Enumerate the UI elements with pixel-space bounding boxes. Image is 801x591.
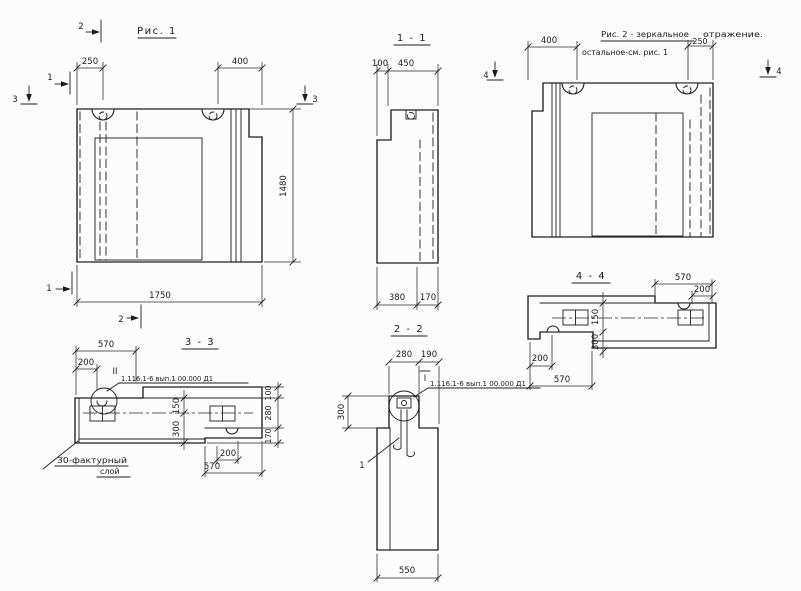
svg-text:300: 300 [591, 334, 601, 350]
svg-text:570: 570 [204, 462, 220, 472]
svg-text:150: 150 [591, 309, 601, 325]
sec11-loop-hidden [408, 113, 415, 120]
drawing-canvas: Рис. 1 250 [0, 0, 801, 591]
sec33-loop-section [97, 401, 107, 406]
svg-text:2: 2 [118, 315, 123, 325]
sec33-note-line1: 30-фактурный [57, 456, 127, 465]
fig2-panel-outline [532, 83, 713, 237]
sec11-dims-top: 100 450 [372, 59, 442, 136]
sec11-title: 1 - 1 [397, 33, 427, 44]
svg-text:170: 170 [264, 428, 273, 443]
drawing-sheet: Рис. 1 250 [0, 0, 801, 591]
sec33-outline [75, 387, 262, 443]
sec22-designation: 1.116.1-6 вып.1 00.000 Д1 [430, 380, 526, 388]
svg-text:550: 550 [399, 566, 415, 576]
fig1-dim-400: 400 [215, 57, 266, 105]
svg-text:300: 300 [337, 404, 347, 420]
svg-text:150: 150 [172, 398, 182, 414]
svg-text:100: 100 [372, 59, 388, 69]
sec44-dim-200-bottom: 200 [527, 335, 556, 390]
sec22-lifting-loop [393, 398, 414, 457]
svg-text:380: 380 [389, 293, 405, 303]
sec22-dim-550: 550 [374, 554, 442, 582]
fig2-dim-250: 250 [685, 37, 717, 80]
fig1-section-marker-2-bottom: 2 [118, 305, 141, 328]
figure-2: Рис. 2 - зеркальное отражение. остальное… [525, 30, 782, 237]
svg-text:400: 400 [232, 57, 248, 67]
sec33-notch [226, 428, 238, 434]
sec44-title: 4 - 4 [576, 271, 606, 282]
sec11-dims-bottom: 380 170 [374, 267, 442, 310]
svg-text:170: 170 [420, 293, 436, 303]
fig1-title: Рис. 1 [137, 26, 177, 37]
sec33-callout-roman: II [112, 367, 117, 377]
svg-text:570: 570 [675, 273, 691, 283]
svg-text:570: 570 [554, 375, 570, 385]
svg-text:1480: 1480 [279, 175, 289, 197]
sec33-dim-200-top: 200 [73, 358, 101, 390]
fig2-section-marker-4: 4 [760, 60, 782, 77]
sec33-facing-layer-note: 30-фактурный слой [43, 441, 130, 477]
sec44-notch-bottom [547, 326, 559, 332]
fig1-section-marker-1-top: 1 [47, 72, 70, 94]
svg-text:570: 570 [98, 340, 114, 350]
sec33-title: 3 - 3 [185, 337, 215, 348]
sec33-dims-thickness: 150 300 [172, 390, 187, 450]
section-3-3: 3 - 3 570 200 150 [43, 337, 284, 477]
fig1-lifting-notch-right [202, 109, 224, 120]
fig1-section-marker-3-right: 3 [297, 86, 318, 105]
sec22-outline [377, 396, 438, 550]
fig2-title-tail: отражение. [703, 30, 763, 39]
fig1-dim-250: 250 [74, 57, 107, 105]
fig1-section-marker-1-bottom: 1 [46, 272, 72, 294]
sec33-embedded-plates [90, 406, 235, 421]
sec33-dim-200-bottom: 200 [214, 441, 242, 464]
sec33-detail-circle [91, 388, 117, 414]
sec22-designation-callout: I 1.116.1-6 вып.1 00.000 Д1 [414, 371, 540, 397]
fig2-opening [592, 113, 683, 236]
sec22-dim-300: 300 [337, 393, 389, 432]
sec44-embedded-plates [563, 310, 703, 325]
sec11-outline [377, 110, 438, 263]
fig1-section-marker-3-left: 3 [12, 86, 37, 105]
fig2-title: Рис. 2 - зеркальное [601, 30, 689, 39]
fig2-lifting-notch-left [562, 83, 584, 94]
fig2-dim-400: 400 [525, 36, 581, 80]
svg-text:4: 4 [776, 67, 781, 77]
sec11-section-marker-4: 4 [483, 62, 503, 81]
svg-text:450: 450 [398, 59, 414, 69]
svg-text:1: 1 [47, 73, 52, 83]
fig2-lifting-notch-right [676, 83, 698, 94]
sec33-designation: 1.116.1-6 вып.1 00.000 Д1 [121, 375, 213, 383]
fig1-dim-1480: 1480 [249, 106, 301, 266]
fig1-section-marker-2-top: 2 [78, 20, 101, 42]
fig2-rib-lines [552, 83, 560, 237]
svg-text:190: 190 [421, 350, 437, 360]
svg-text:1: 1 [46, 284, 51, 294]
section-1-1: 1 - 1 100 450 380 170 4 [372, 33, 503, 310]
svg-text:3: 3 [312, 95, 317, 105]
sec33-dim-570-bottom: 570 [202, 441, 266, 477]
fig1-lifting-notch-left [92, 109, 114, 120]
fig1-hidden-edges [80, 112, 137, 260]
svg-text:3: 3 [12, 95, 17, 105]
svg-text:280: 280 [396, 350, 412, 360]
svg-text:300: 300 [172, 421, 182, 437]
svg-text:1750: 1750 [149, 291, 171, 301]
fig2-subtitle: остальное-см. рис. 1 [582, 48, 668, 57]
fig1-dim-1750: 1750 [74, 265, 266, 307]
svg-text:200: 200 [78, 358, 94, 368]
svg-text:200: 200 [220, 449, 236, 459]
svg-text:100: 100 [264, 385, 273, 400]
sec22-loop-leader: 1 [359, 438, 399, 471]
sec22-callout-roman: I [424, 374, 427, 384]
svg-text:4: 4 [483, 71, 488, 81]
section-4-4: 4 - 4 570 200 150 300 [527, 271, 717, 390]
sec22-leader-label: 1 [359, 461, 364, 471]
fig1-opening [95, 138, 202, 260]
svg-text:200: 200 [694, 285, 710, 295]
sec44-notch-top [678, 303, 690, 309]
svg-text:250: 250 [82, 57, 98, 67]
fig1-rib-lines [231, 109, 241, 262]
fig1-panel-outline [77, 109, 262, 262]
sec33-note-line2: слой [100, 467, 120, 476]
svg-text:250: 250 [692, 37, 707, 46]
section-2-2: 2 - 2 1 280 190 [337, 324, 540, 582]
svg-text:200: 200 [532, 354, 548, 364]
figure-1: Рис. 1 250 [12, 20, 317, 328]
svg-text:280: 280 [264, 405, 273, 420]
svg-text:400: 400 [541, 36, 557, 46]
sec22-title: 2 - 2 [394, 324, 424, 335]
svg-text:2: 2 [78, 22, 83, 32]
